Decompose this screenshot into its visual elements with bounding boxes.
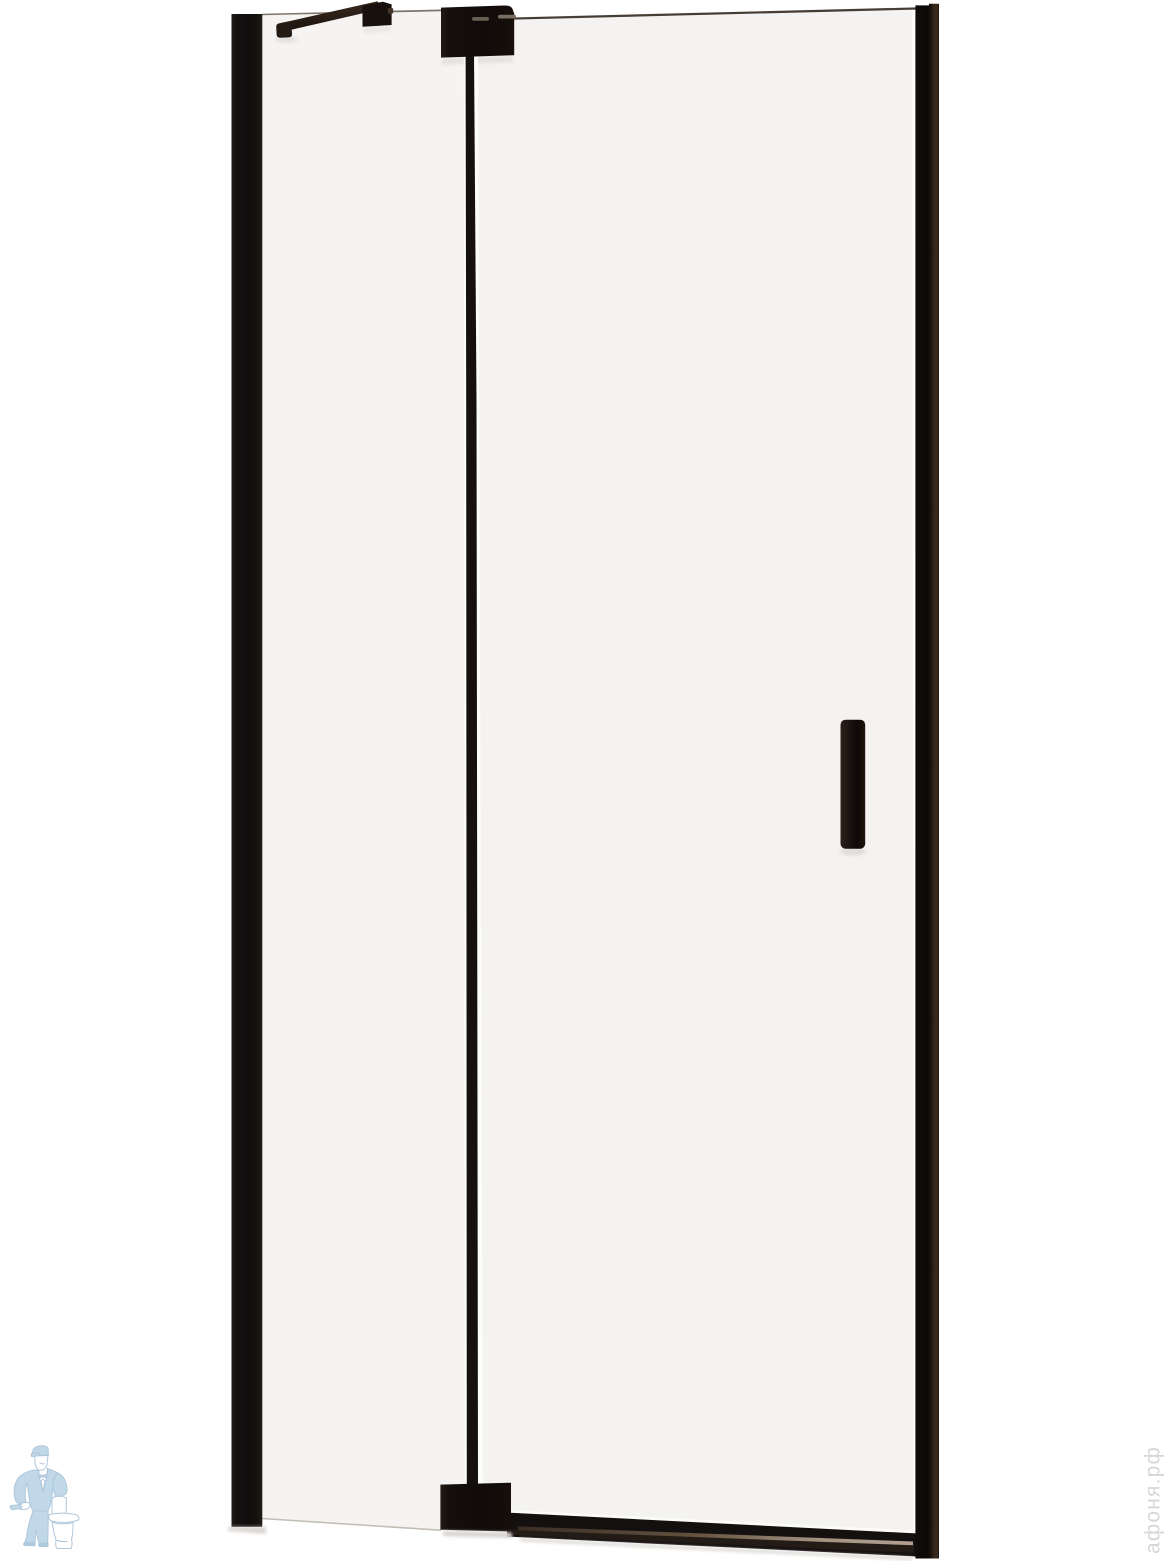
svg-text:афоня.рф: афоня.рф — [1142, 1446, 1165, 1554]
